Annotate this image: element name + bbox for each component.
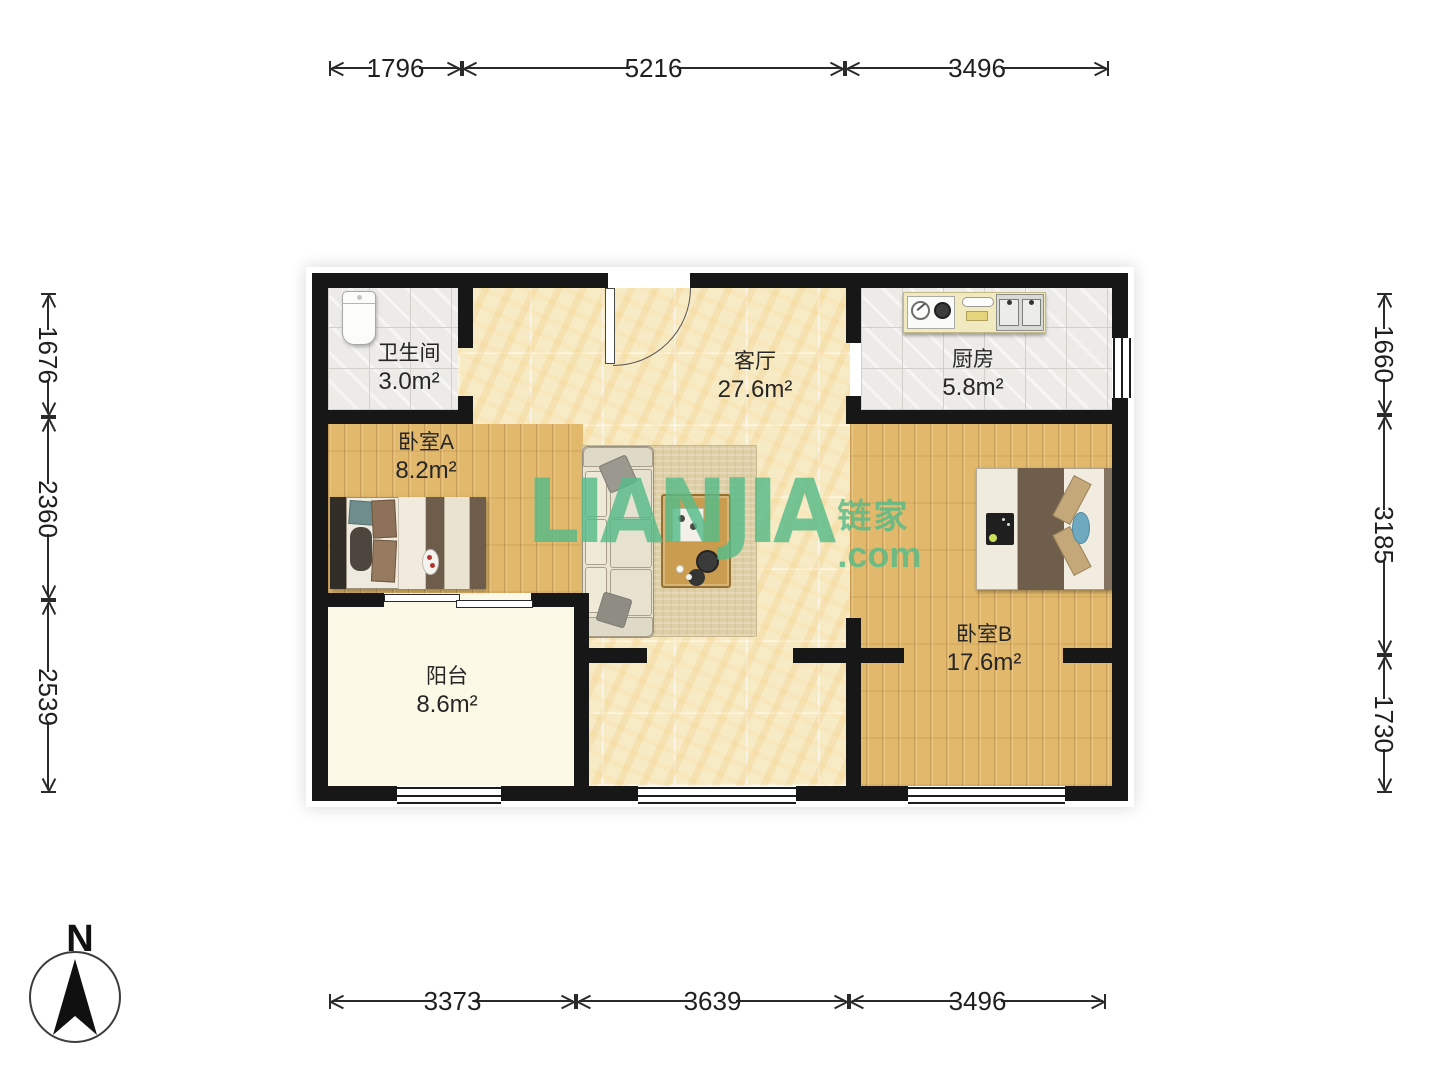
dim-value: 3185 <box>1371 506 1397 564</box>
room-label-bathroom: 卫生间 3.0m² <box>378 341 441 396</box>
bed-a-blanket-panel <box>444 497 470 589</box>
room-name: 厨房 <box>942 347 1003 373</box>
room-name: 阳台 <box>416 664 477 690</box>
room-name: 卫生间 <box>378 341 441 367</box>
wall-stub-middle <box>793 648 904 663</box>
sink-drain-right <box>1029 300 1034 305</box>
dim-value: 1660 <box>1371 325 1397 383</box>
table-dish <box>686 574 692 580</box>
dim-left-2: 2360 <box>40 417 56 600</box>
room-area: 17.6m² <box>947 648 1022 677</box>
bed-a-pillow-brown <box>371 499 397 538</box>
wall <box>501 786 638 801</box>
bed-a <box>330 497 486 589</box>
room-area: 5.8m² <box>942 373 1003 402</box>
bed-b-blanket <box>1018 468 1064 590</box>
compass <box>29 951 121 1043</box>
room-area: 8.6m² <box>416 690 477 719</box>
wall <box>312 273 328 801</box>
slipper-dot <box>430 563 435 568</box>
wall-bedroom-b-left <box>846 618 861 801</box>
bed-a-slipper-mat <box>422 549 439 575</box>
living-room-window <box>638 787 796 804</box>
wall <box>1112 398 1128 801</box>
spice-box <box>966 311 988 321</box>
sink-drain-left <box>1007 300 1012 305</box>
room-label-bedroom-b: 卧室B 17.6m² <box>947 622 1022 677</box>
room-name: 卧室B <box>947 622 1022 648</box>
dim-value: 3496 <box>942 988 1014 1014</box>
dim-value: 3496 <box>941 55 1013 81</box>
room-label-kitchen: 厨房 5.8m² <box>942 347 1003 402</box>
coffee-table <box>661 494 731 588</box>
room-name: 客厅 <box>718 349 793 375</box>
stove-burner-right <box>934 302 951 319</box>
room-label-living: 客厅 27.6m² <box>718 349 793 404</box>
dim-bottom-3: 3496 <box>849 993 1106 1009</box>
bed-a-bolster <box>350 527 372 571</box>
dim-left-3: 2539 <box>40 600 56 793</box>
table-cup <box>678 515 685 522</box>
wall-bathroom-right <box>458 273 473 348</box>
hood-control <box>962 297 994 307</box>
wall <box>690 273 1128 288</box>
dim-value: 2539 <box>35 668 61 726</box>
sofa-back-cushion <box>585 519 607 565</box>
bedroom-b-window <box>908 787 1065 804</box>
balcony-sliding-door-panel <box>456 600 533 608</box>
dim-bottom-1: 3373 <box>329 993 576 1009</box>
dim-right-1: 1660 <box>1376 293 1392 415</box>
bed-a-folded-sheet <box>398 497 426 589</box>
room-label-bedroom-a: 卧室A 8.2m² <box>395 430 456 485</box>
room-name: 卧室A <box>395 430 456 456</box>
dim-top-3: 3496 <box>845 60 1109 76</box>
balcony-window <box>397 787 501 804</box>
dim-right-2: 3185 <box>1376 415 1392 655</box>
toilet-tank-line <box>342 303 376 304</box>
wall-stub-right <box>1063 648 1128 663</box>
bed-a-headboard <box>330 497 346 589</box>
dim-value: 1730 <box>1371 695 1397 753</box>
slipper-dot <box>427 555 432 560</box>
balcony-sliding-door-panel <box>384 594 460 602</box>
bed-b-headboard <box>1104 468 1112 590</box>
bed-a-pillow-brown <box>371 539 397 582</box>
dim-value: 5216 <box>618 55 690 81</box>
tv-dot <box>1002 518 1005 521</box>
wall-balcony-right <box>574 593 589 801</box>
dim-right-3: 1730 <box>1376 655 1392 793</box>
bed-b-pillow-blue <box>1072 512 1090 544</box>
sofa <box>582 446 654 638</box>
dim-value: 3639 <box>677 988 749 1014</box>
dim-value: 2360 <box>35 480 61 538</box>
tv-dot <box>1007 523 1010 526</box>
room-area: 8.2m² <box>395 456 456 485</box>
bed-b <box>976 468 1112 590</box>
sofa-seat-cushion <box>610 519 652 568</box>
dim-value: 3373 <box>417 988 489 1014</box>
dim-left-1: 1676 <box>40 293 56 417</box>
table-tray <box>672 508 704 542</box>
table-cup <box>690 523 697 530</box>
wall-bathroom-bottom <box>312 410 473 424</box>
table-dish <box>676 565 684 573</box>
wall-stub-left <box>589 648 647 663</box>
toilet-button <box>357 295 362 300</box>
dim-value: 1676 <box>35 326 61 384</box>
wall-balcony-top-left <box>312 593 384 607</box>
dim-bottom-2: 3639 <box>576 993 849 1009</box>
dim-top-2: 5216 <box>462 60 845 76</box>
room-area: 3.0m² <box>378 367 441 396</box>
room-area: 27.6m² <box>718 375 793 404</box>
floorplan-page: 卫生间 3.0m² 客厅 27.6m² 厨房 5.8m² 卧室A 8.2m² 卧… <box>0 0 1440 1080</box>
stove-burner-left <box>911 301 930 320</box>
wall <box>1065 786 1128 801</box>
room-label-balcony: 阳台 8.6m² <box>416 664 477 719</box>
wall <box>1112 273 1128 338</box>
wall <box>312 786 397 801</box>
dim-top-1: 1796 <box>329 60 462 76</box>
wall-kitchen-left <box>846 273 861 343</box>
dim-value: 1796 <box>360 55 432 81</box>
north-arrow-icon <box>31 953 119 1041</box>
kitchen-window <box>1113 338 1131 398</box>
tv-dot-green <box>989 534 997 542</box>
wall-kitchen-bottom <box>846 410 1128 424</box>
